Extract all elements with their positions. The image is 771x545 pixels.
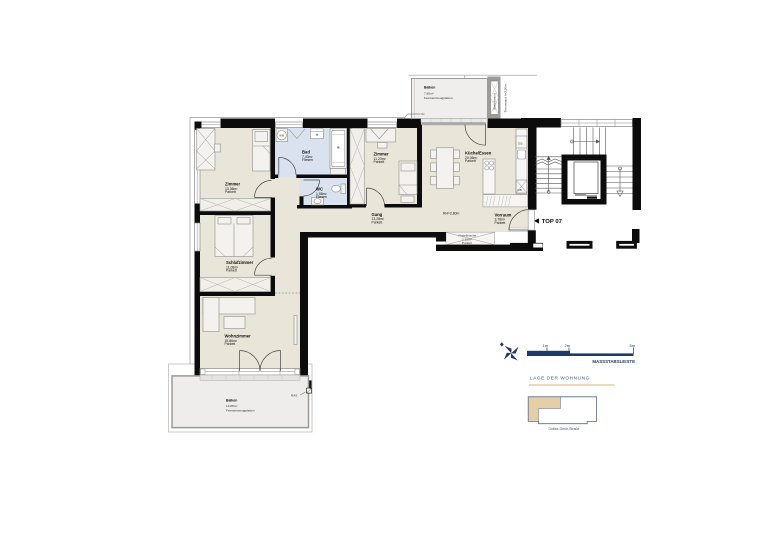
- svg-text:Vorraum: Vorraum: [495, 212, 512, 217]
- svg-text:Balkon: Balkon: [424, 86, 435, 90]
- svg-text:Parkett: Parkett: [225, 342, 236, 346]
- svg-text:Fliesen: Fliesen: [302, 158, 313, 162]
- svg-text:WM: WM: [279, 133, 284, 137]
- svg-text:2m: 2m: [565, 343, 571, 348]
- svg-text:TOP 07: TOP 07: [542, 219, 563, 225]
- svg-text:Parkett: Parkett: [495, 221, 506, 225]
- svg-text:Zimmer: Zimmer: [225, 182, 240, 187]
- svg-text:GS: GS: [518, 142, 522, 146]
- svg-text:Abstellwand: Abstellwand: [493, 93, 497, 110]
- svg-text:Wohnzimmer: Wohnzimmer: [225, 334, 252, 339]
- svg-text:Parkett: Parkett: [462, 241, 472, 245]
- svg-text:Parkett: Parkett: [225, 190, 236, 194]
- svg-text:Zimmer: Zimmer: [374, 152, 389, 157]
- svg-text:Balkon: Balkon: [226, 399, 237, 403]
- svg-text:5m: 5m: [630, 343, 636, 348]
- svg-text:MASSSTABSLEISTE: MASSSTABSLEISTE: [592, 359, 635, 364]
- svg-text:KB: KB: [518, 188, 522, 192]
- svg-text:Parkett: Parkett: [374, 160, 385, 164]
- svg-text:Feinsteinzeugplatten: Feinsteinzeugplatten: [424, 96, 453, 100]
- svg-text:RH=2,80m: RH=2,80m: [443, 212, 459, 216]
- svg-text:Feinsteinzeugplatten: Feinsteinzeugplatten: [226, 409, 255, 413]
- svg-text:Küche/Essen: Küche/Essen: [465, 151, 492, 156]
- svg-text:Parkett: Parkett: [372, 221, 383, 225]
- svg-text:Parkett: Parkett: [226, 269, 237, 273]
- svg-text:14,88m²: 14,88m²: [226, 404, 237, 408]
- svg-text:LAGE DER WOHNUNG: LAGE DER WOHNUNG: [530, 375, 590, 380]
- svg-text:Fliesen: Fliesen: [316, 195, 327, 199]
- svg-text:Gang: Gang: [372, 212, 383, 217]
- svg-text:Doktor-Gmür-Straße: Doktor-Gmür-Straße: [549, 427, 580, 431]
- svg-text:Parkett: Parkett: [465, 159, 476, 163]
- svg-text:Schlafzimmer: Schlafzimmer: [226, 260, 254, 265]
- svg-text:fix: fix: [422, 112, 426, 116]
- svg-text:Trennwand h=2,20m: Trennwand h=2,20m: [504, 84, 508, 113]
- svg-text:RAS: RAS: [291, 394, 297, 398]
- svg-text:Bad: Bad: [302, 150, 310, 155]
- svg-text:1m: 1m: [543, 343, 549, 348]
- svg-text:WC: WC: [316, 187, 323, 192]
